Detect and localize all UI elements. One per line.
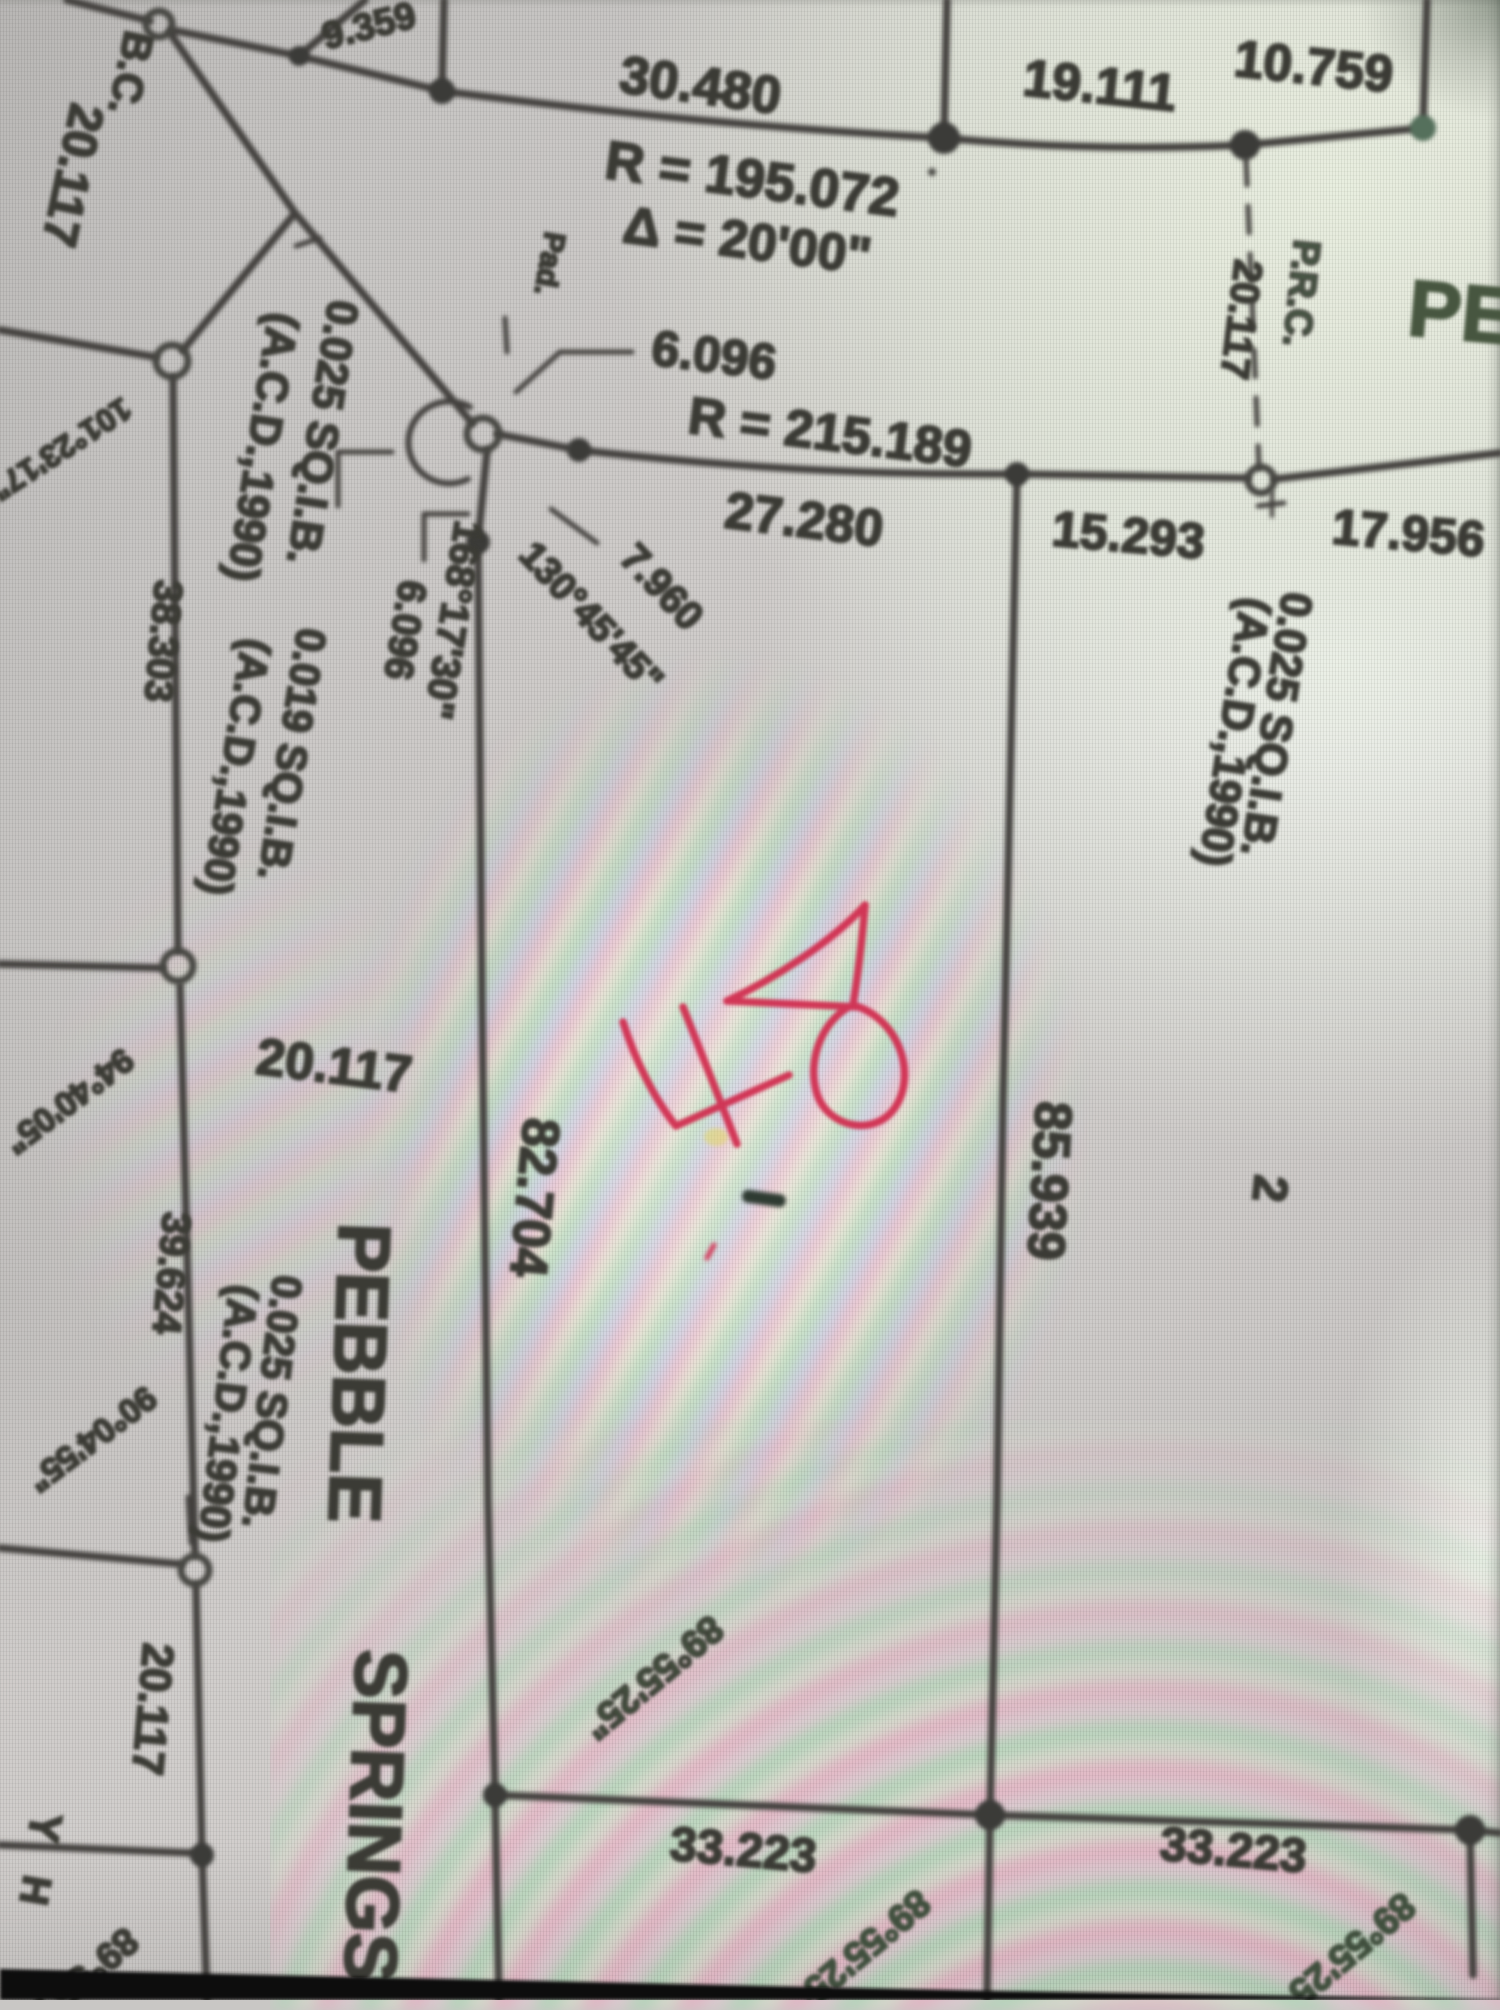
svg-text:33.223: 33.223 <box>1158 1818 1309 1884</box>
svg-text:PEBBLE: PEBBLE <box>313 1221 406 1524</box>
svg-text:15.293: 15.293 <box>1050 501 1207 570</box>
svg-text:85.939: 85.939 <box>1016 1100 1082 1262</box>
svg-text:PEE: PEE <box>1405 263 1500 366</box>
svg-text:19.111: 19.111 <box>1021 49 1180 123</box>
svg-text:89°55'25": 89°55'25" <box>781 1881 938 2000</box>
svg-text:20.117: 20.117 <box>1212 257 1270 382</box>
svg-text:P.R.C.: P.R.C. <box>1274 238 1327 349</box>
svg-text:SPRINGS: SPRINGS <box>328 1648 423 1984</box>
svg-text:20.117: 20.117 <box>31 99 113 251</box>
svg-text:H: H <box>11 1872 59 1908</box>
svg-text:101°23'17": 101°23'17" <box>0 391 138 508</box>
svg-text:82.704: 82.704 <box>498 1116 570 1280</box>
svg-text:20.117: 20.117 <box>253 1028 415 1105</box>
svg-text:94°40'05": 94°40'05" <box>0 1040 140 1161</box>
svg-text:89°55'25": 89°55'25" <box>1266 1884 1423 2000</box>
svg-text:B.C.: B.C. <box>99 27 162 119</box>
svg-text:9.359: 9.359 <box>318 0 420 58</box>
svg-text:20.117: 20.117 <box>122 1641 182 1777</box>
svg-text:33.223: 33.223 <box>668 1818 819 1884</box>
svg-text:89°55'25": 89°55'25" <box>574 1607 731 1748</box>
svg-text:Y: Y <box>18 1809 71 1846</box>
svg-text:17.956: 17.956 <box>1330 499 1487 568</box>
svg-text:90°04'55": 90°04'55" <box>20 1378 164 1499</box>
svg-text:10.759: 10.759 <box>1232 30 1396 104</box>
svg-text:39.624: 39.624 <box>144 1210 199 1336</box>
svg-text:Pad.: Pad. <box>528 230 572 298</box>
svg-text:38.303: 38.303 <box>136 578 190 704</box>
svg-text:6.096: 6.096 <box>649 320 780 391</box>
svg-text:27.280: 27.280 <box>722 482 887 559</box>
svg-text:7.960: 7.960 <box>611 536 711 639</box>
svg-text:2: 2 <box>1242 1173 1298 1205</box>
